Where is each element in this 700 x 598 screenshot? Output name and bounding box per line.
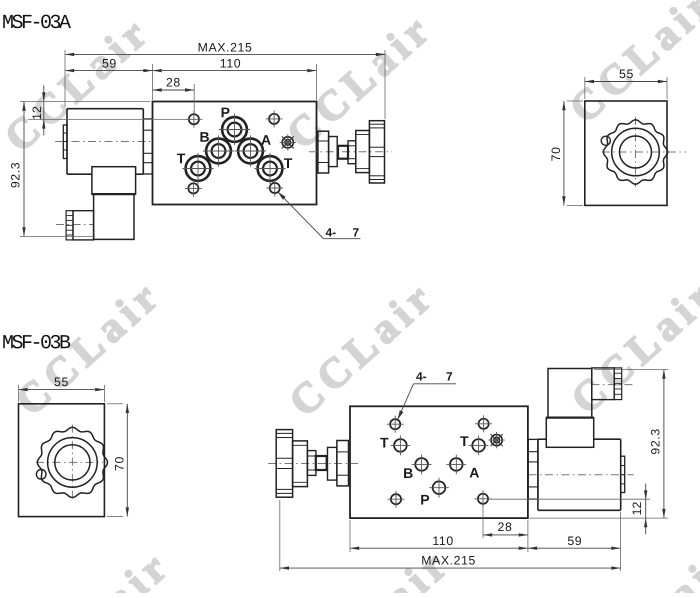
svg-text:MSF-03B: MSF-03B bbox=[2, 332, 71, 355]
svg-text:55: 55 bbox=[54, 375, 69, 389]
svg-text:92.3: 92.3 bbox=[9, 162, 23, 188]
svg-text:P: P bbox=[221, 104, 230, 120]
svg-text:110: 110 bbox=[220, 56, 241, 70]
svg-text:MSF-03A: MSF-03A bbox=[2, 12, 71, 35]
svg-text:110: 110 bbox=[432, 534, 453, 548]
svg-text:P: P bbox=[420, 491, 429, 507]
svg-text:B: B bbox=[403, 465, 413, 481]
svg-text:MAX.215: MAX.215 bbox=[198, 40, 253, 54]
svg-text:T: T bbox=[380, 434, 389, 450]
svg-text:7: 7 bbox=[446, 370, 453, 384]
svg-text:28: 28 bbox=[498, 520, 513, 534]
svg-text:28: 28 bbox=[166, 75, 181, 89]
svg-text:12: 12 bbox=[630, 502, 644, 516]
svg-text:MAX.215: MAX.215 bbox=[421, 553, 476, 567]
svg-text:B: B bbox=[199, 129, 209, 145]
svg-text:A: A bbox=[261, 132, 271, 148]
svg-text:4-: 4- bbox=[416, 370, 427, 384]
svg-text:7: 7 bbox=[352, 226, 359, 240]
svg-text:4-: 4- bbox=[325, 226, 336, 240]
svg-text:70: 70 bbox=[112, 456, 126, 471]
svg-text:T: T bbox=[284, 155, 293, 171]
svg-text:70: 70 bbox=[549, 146, 563, 161]
svg-text:A: A bbox=[469, 464, 479, 480]
svg-text:59: 59 bbox=[102, 56, 117, 70]
svg-text:T: T bbox=[460, 433, 469, 449]
svg-text:12: 12 bbox=[30, 106, 44, 120]
svg-text:T: T bbox=[177, 150, 186, 166]
svg-text:55: 55 bbox=[619, 67, 634, 81]
svg-text:59: 59 bbox=[567, 534, 582, 548]
svg-text:92.3: 92.3 bbox=[649, 428, 663, 454]
